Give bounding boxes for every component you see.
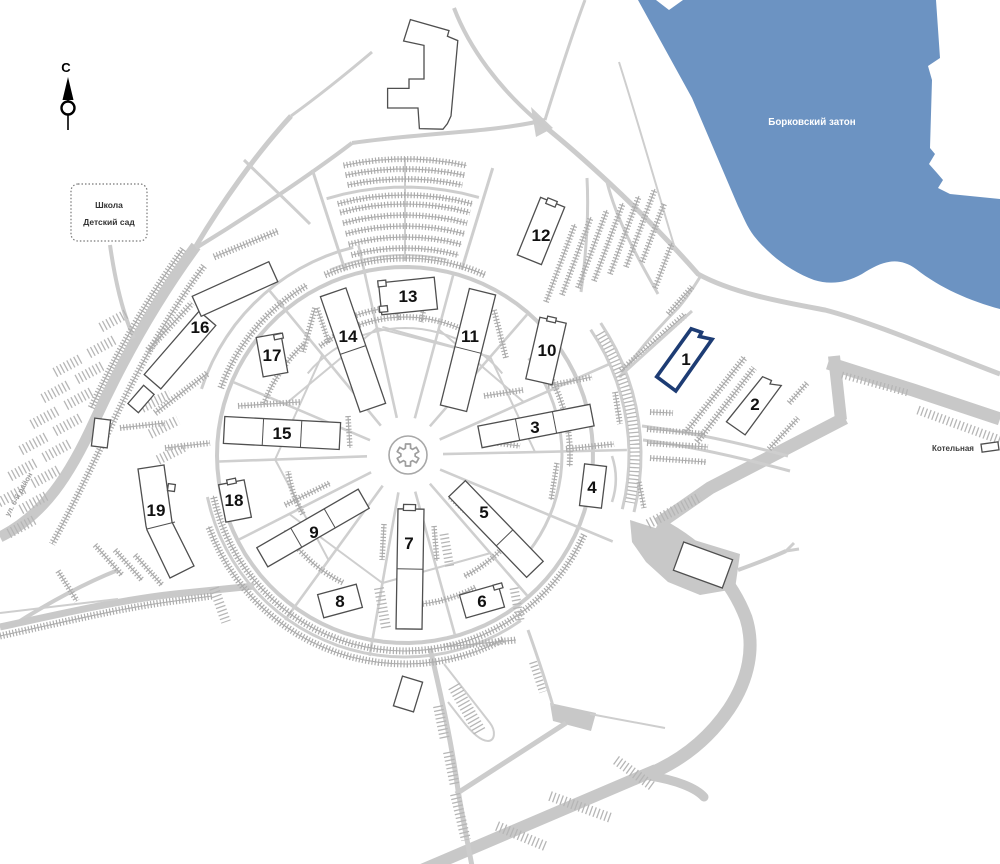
svg-text:4: 4: [587, 478, 597, 497]
svg-text:2: 2: [750, 395, 759, 414]
svg-text:С: С: [61, 60, 71, 75]
svg-text:11: 11: [461, 327, 479, 346]
svg-text:Борковский затон: Борковский затон: [768, 117, 856, 128]
svg-text:1: 1: [681, 350, 690, 369]
svg-text:Школа: Школа: [95, 200, 123, 210]
svg-text:Детский сад: Детский сад: [83, 217, 135, 227]
svg-text:5: 5: [479, 503, 488, 522]
svg-text:19: 19: [147, 501, 166, 520]
svg-text:14: 14: [339, 327, 358, 346]
svg-text:7: 7: [404, 534, 413, 553]
svg-text:18: 18: [225, 491, 244, 510]
svg-text:17: 17: [263, 346, 282, 365]
svg-text:16: 16: [191, 318, 210, 337]
svg-text:8: 8: [335, 592, 344, 611]
svg-text:12: 12: [532, 226, 551, 245]
svg-text:6: 6: [477, 592, 486, 611]
svg-text:10: 10: [538, 341, 557, 360]
svg-text:Котельная: Котельная: [932, 444, 974, 453]
svg-text:13: 13: [399, 287, 418, 306]
svg-text:9: 9: [309, 523, 318, 542]
svg-text:15: 15: [273, 424, 292, 443]
svg-text:3: 3: [530, 418, 539, 437]
